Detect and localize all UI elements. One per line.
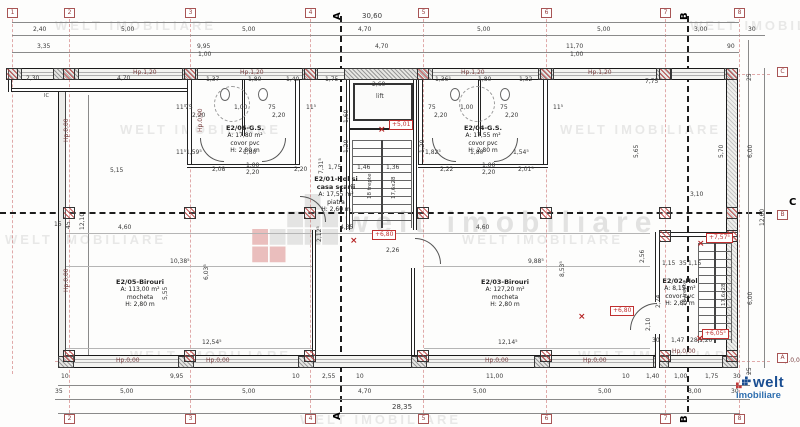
dim-line (66, 348, 312, 349)
section-flag: B (680, 415, 690, 423)
grid-bubble: C (777, 67, 788, 77)
dim-label: 1,47 (671, 338, 684, 344)
dim-label: 1,15 (688, 261, 701, 267)
level-label: Hp.0,00 (583, 358, 607, 364)
dim-label: 11⁵ (553, 105, 563, 111)
partition-wall (543, 80, 548, 168)
level-label: Hp.0,00 (116, 358, 140, 364)
grid-bubble: A (777, 353, 788, 363)
column (184, 68, 196, 80)
grid-bubble: 4 (305, 8, 316, 18)
room-label-e202: E2/02-Hol A: 8,15 m² covor pvc H: 2,80 m (658, 277, 702, 308)
window-glazing (58, 362, 738, 363)
column (540, 207, 552, 219)
dim-label: 9,95 (170, 374, 183, 380)
dim-label: 75 (268, 105, 276, 111)
column (6, 68, 18, 80)
dim-label: 11,00 (486, 374, 503, 380)
elevation-marker: × (378, 126, 386, 135)
dim-line (58, 385, 750, 386)
dim-label: 1,00 (198, 52, 211, 58)
dim-label: 1,75 (705, 374, 718, 380)
elevation-label: +6,80 (372, 230, 396, 240)
level-label: Hp.1,20 (461, 70, 485, 76)
dim-label: 30 (652, 338, 660, 344)
dim-label: 2,01⁵ (518, 167, 534, 173)
stair-stringer (714, 243, 716, 343)
grid-bubble: 2 (64, 8, 75, 18)
dim-label: 2,20 (434, 113, 447, 119)
dim-label: 9,95 (197, 44, 210, 50)
dim-label: 5,00 (597, 27, 610, 33)
dim-line (424, 266, 650, 267)
dim-label: 1,00 (234, 105, 247, 111)
grid-bubble: 1 (7, 8, 18, 18)
column (659, 68, 671, 80)
dim-label: 5,00 (121, 27, 134, 33)
floor-plan-drawing: WELT IMOBILIAREWELT IMOBILIAREWELT IMOBI… (0, 0, 800, 427)
column (63, 350, 75, 362)
grid-bubble: 3 (185, 8, 196, 18)
dim-label: 28,35 (392, 404, 412, 411)
dim-label: 2,26 (386, 248, 399, 254)
dim-line (12, 22, 739, 23)
dim-line (12, 35, 765, 36)
dim-label: 2,30 (26, 76, 39, 82)
column (726, 68, 738, 80)
dim-label: 75 (185, 105, 193, 111)
room-label-e205: E2/05-Birouri A: 113,00 m² mocheta H: 2,… (100, 278, 180, 309)
watermark-text: WELT IMOBILIARE (300, 412, 461, 427)
dim-label: 5,15 (110, 168, 123, 174)
elevation-marker: × (350, 237, 358, 246)
dim-label: lift (376, 94, 384, 100)
dim-label: 4,60 (118, 225, 131, 231)
dim-label: 35 (679, 261, 687, 267)
elevation-marker: × (697, 240, 705, 249)
dim-label: 10 (292, 374, 300, 380)
dim-label: 30,60 (362, 13, 382, 20)
stair-stringer (381, 140, 383, 228)
partition-wall (187, 164, 300, 168)
elevation-marker: × (578, 313, 586, 322)
dim-line (748, 40, 749, 375)
wc-fixture (500, 88, 510, 101)
dim-label: 7,31⁵ (319, 158, 325, 174)
dim-label: 6,03⁵ (204, 264, 210, 280)
dim-label: 18 trepte (368, 174, 374, 199)
grid-bubble: 4 (305, 414, 316, 424)
brand-house-icon (736, 376, 751, 389)
dim-line (424, 348, 650, 349)
column (184, 350, 196, 362)
dim-label: 45 (66, 221, 72, 229)
dim-label: 30 (748, 27, 756, 33)
dim-label: 1,80 (478, 77, 491, 83)
dim-label: 5,65 (634, 145, 640, 158)
section-flag: A (333, 12, 343, 20)
room-label-e206: E2/06-G.S. A: 17,80 m² covor pvc H: 2,80… (212, 124, 278, 155)
dim-line (12, 52, 739, 53)
dim-label: 2,20 (246, 170, 259, 176)
dim-line (66, 266, 312, 267)
grid-bubble: 7 (660, 414, 671, 424)
grid-bubble: B (777, 210, 788, 220)
grid-bubble: 3 (185, 414, 196, 424)
dim-label: 25 (747, 73, 753, 81)
dim-label: 12,60 (760, 209, 766, 226)
wc-fixture (450, 88, 460, 101)
room-label-e203: E2/03-Birouri A: 127,20 m² mocheta H: 2,… (463, 278, 547, 309)
dim-label: 10 (61, 374, 69, 380)
dim-label: 15 (54, 222, 62, 228)
dim-label: 2,12⁵ (317, 226, 323, 242)
dim-label: 3,35 (37, 44, 50, 50)
section-flag: A (333, 412, 343, 420)
wc-fixture (220, 88, 230, 101)
dim-label: 5,00 (242, 27, 255, 33)
dim-label: 1,60 (344, 110, 350, 123)
column (304, 68, 316, 80)
dim-label: 4,70 (358, 389, 371, 395)
dim-label: 12,10 (80, 213, 86, 230)
dim-line (88, 95, 89, 357)
dim-label: 1,80 (248, 77, 261, 83)
column (304, 350, 316, 362)
dim-line (58, 413, 740, 414)
dim-label: 1,00 (674, 374, 687, 380)
dim-label: 5,00 (598, 389, 611, 395)
door-arc (415, 238, 441, 264)
dim-label: 1,82⁵ (425, 150, 441, 156)
dim-label: 1,00 (460, 105, 473, 111)
column (63, 207, 75, 219)
grid-bubble: 5 (418, 414, 429, 424)
watermark-text: WELT IMOBILIARE (55, 18, 216, 33)
dim-label: 2,55 (322, 374, 335, 380)
room-label-e201: E2/01-Hol si casa scarii A: 17,55 m² pia… (304, 175, 368, 214)
elevator-shaft (353, 83, 413, 121)
dim-label: 6,00 (748, 292, 754, 305)
dim-label: 2,20 (294, 167, 307, 173)
elevation-label: +6,05⁵ (702, 329, 729, 339)
dim-label: 1,40 (646, 374, 659, 380)
grid-bubble: 6 (541, 8, 552, 18)
dim-label: 1,00 (570, 52, 583, 58)
level-label: Hp.0,00 (672, 349, 696, 355)
dim-label: 4,70 (117, 76, 130, 82)
grid-bubble: 8 (734, 414, 745, 424)
dim-label: 1,75 (328, 165, 341, 171)
dim-label: 12,54⁵ (202, 340, 222, 346)
dim-label: 2,20 (482, 170, 495, 176)
dim-label: 5,70 (719, 145, 725, 158)
room-label-e204: E2/04-G.S. A: 17,55 m² covor pvc H: 2,80… (450, 124, 516, 155)
section-flag: B (680, 12, 690, 20)
dim-label: 17,6x28 (722, 284, 728, 307)
watermark-text: WELT IMOBILIARE (5, 232, 166, 247)
elevation-label: +6,80 (610, 306, 634, 316)
level-label: Hp.0,00 (206, 358, 230, 364)
column (659, 230, 671, 242)
column (659, 350, 671, 362)
partition-wall (312, 230, 316, 355)
brand-logo: welt imobiliare (736, 372, 798, 401)
grid-bubble: 8 (734, 8, 745, 18)
level-label: Hp.0,00 (64, 268, 70, 292)
dim-label: 3,00 (688, 389, 701, 395)
column (417, 207, 429, 219)
level-label: Hp.0,00 (485, 358, 509, 364)
section-flag: C (789, 198, 796, 208)
level-label: Hp.0,00 (64, 118, 70, 142)
balcony-edge (8, 88, 188, 92)
dim-label: 1,46 (357, 165, 370, 171)
dim-label: 1,75 (325, 77, 338, 83)
level-label: Hp.1,20 (588, 70, 612, 76)
dim-label: 35 (55, 389, 63, 395)
dim-label: 2,20 (272, 113, 285, 119)
dim-label: 75 (500, 105, 508, 111)
level-label: Hp.1,20 (133, 70, 157, 76)
dim-label: 11⁵ (306, 105, 316, 111)
dim-label: 2,10 (646, 318, 652, 331)
dim-label: 5,00 (477, 27, 490, 33)
dim-label: 90 (727, 44, 735, 50)
elevation-label: +7,57⁵ (706, 233, 733, 243)
dim-label: 2,08 (212, 167, 225, 173)
grid-bubble: 6 (541, 414, 552, 424)
dim-label: 2,40 (33, 27, 46, 33)
dim-label: 17,6x28 (392, 177, 398, 200)
brand-name: welt (753, 374, 784, 391)
dim-label: 2,60 (372, 82, 385, 88)
dim-label: 3,00 (694, 27, 707, 33)
dim-label: 4,60 (476, 225, 489, 231)
dim-label: 8,53⁵ (560, 261, 566, 277)
dim-label: 9,88⁵ (528, 259, 544, 265)
elevation-marker: × (696, 335, 704, 344)
grid-bubble: 7 (660, 8, 671, 18)
column (184, 207, 196, 219)
dim-label: IC (44, 94, 49, 99)
dim-label: 1,37 (206, 77, 219, 83)
dim-line (62, 233, 650, 234)
dim-label: 1,36⁵ (435, 77, 451, 83)
level-label: Hp.0,00 (198, 108, 204, 132)
dim-label: 1,59⁵ (186, 150, 202, 156)
dim-label: 12,14⁵ (498, 340, 518, 346)
dim-label: 1,32 (519, 77, 532, 83)
level-label: Hp.1,20 (240, 70, 264, 76)
dim-label: 1,20 (344, 140, 350, 153)
grid-bubble: 5 (418, 8, 429, 18)
window-glazing (58, 359, 738, 360)
dim-label: 3,10 (690, 192, 703, 198)
wc-fixture (258, 88, 268, 101)
column (417, 350, 429, 362)
partition-wall (411, 268, 415, 355)
column (540, 350, 552, 362)
dim-label: 1,36 (386, 165, 399, 171)
dim-label: 11,70 (566, 44, 583, 50)
column (417, 68, 429, 80)
column (726, 207, 738, 219)
dim-label: 4,70 (375, 44, 388, 50)
brand-subtitle: imobiliare (736, 391, 798, 401)
dim-label: 10,38⁵ (170, 259, 190, 265)
dim-label: 5,00 (120, 389, 133, 395)
watermark-text: WELT IMOBILIARE (560, 122, 721, 137)
dim-label: 11⁵ (176, 150, 186, 156)
column (63, 68, 75, 80)
dim-label: 2,20 (505, 113, 518, 119)
partition-wall (295, 80, 300, 168)
dim-label: 1,40 (286, 77, 299, 83)
dim-label: 2,56 (640, 250, 646, 263)
dim-label: 10 (356, 374, 364, 380)
dim-label: 7,75 (645, 79, 658, 85)
partition-wall (418, 80, 423, 168)
dim-line (55, 399, 750, 400)
dim-label: 5,00 (242, 389, 255, 395)
dim-label: 1,15 (662, 261, 675, 267)
dim-label: 10 (622, 374, 630, 380)
dim-label: 4,70 (358, 27, 371, 33)
dim-label: 6,00 (748, 145, 754, 158)
column (726, 350, 738, 362)
dim-label: 75 (428, 105, 436, 111)
elevation-label: +5,01 (389, 120, 413, 130)
dim-label: 2,22 (440, 167, 453, 173)
column (659, 207, 671, 219)
dim-label: 4,35 (340, 225, 353, 231)
column (540, 68, 552, 80)
dim-label: 5,00 (473, 389, 486, 395)
grid-bubble: 2 (64, 414, 75, 424)
